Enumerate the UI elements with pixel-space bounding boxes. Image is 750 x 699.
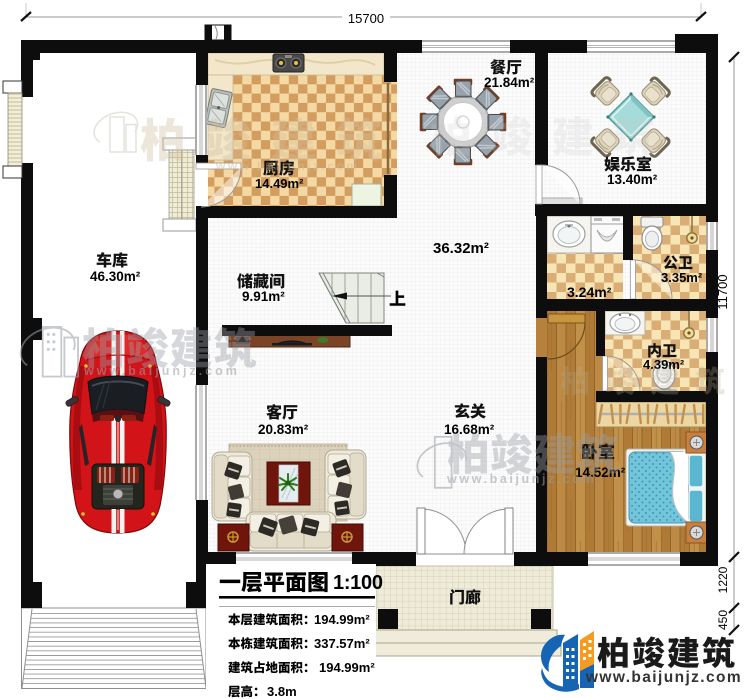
svg-text:3.35m²: 3.35m² xyxy=(661,270,703,285)
svg-text:www.baijunjz.com: www.baijunjz.com xyxy=(83,364,240,378)
svg-text:46.30m²: 46.30m² xyxy=(90,269,141,284)
svg-text:www.baijunjz.com: www.baijunjz.com xyxy=(585,669,742,686)
svg-text:194.99m²: 194.99m² xyxy=(314,612,370,627)
svg-text:15700: 15700 xyxy=(348,11,384,26)
svg-text:1220: 1220 xyxy=(716,566,730,593)
svg-text:www.baijunjz.com: www.baijunjz.com xyxy=(215,159,360,173)
svg-text:www.baijunjz.com: www.baijunjz.com xyxy=(446,472,596,486)
svg-text:16.68m²: 16.68m² xyxy=(444,422,495,437)
svg-text:20.83m²: 20.83m² xyxy=(258,422,309,437)
svg-text:14.49m²: 14.49m² xyxy=(255,176,304,191)
svg-text:194.99m²: 194.99m² xyxy=(319,660,375,675)
svg-text:21.84m²: 21.84m² xyxy=(484,75,535,90)
svg-text:3.8m: 3.8m xyxy=(267,684,297,699)
svg-text:36.32m²: 36.32m² xyxy=(433,240,489,257)
svg-text:1:100: 1:100 xyxy=(333,572,383,594)
svg-text:9.91m²: 9.91m² xyxy=(242,289,285,304)
svg-text:337.57m²: 337.57m² xyxy=(314,636,370,651)
svg-text:13.40m²: 13.40m² xyxy=(607,172,658,187)
svg-text:11700: 11700 xyxy=(715,274,730,309)
svg-text:450: 450 xyxy=(716,610,730,630)
svg-text:3.24m²: 3.24m² xyxy=(567,284,612,300)
